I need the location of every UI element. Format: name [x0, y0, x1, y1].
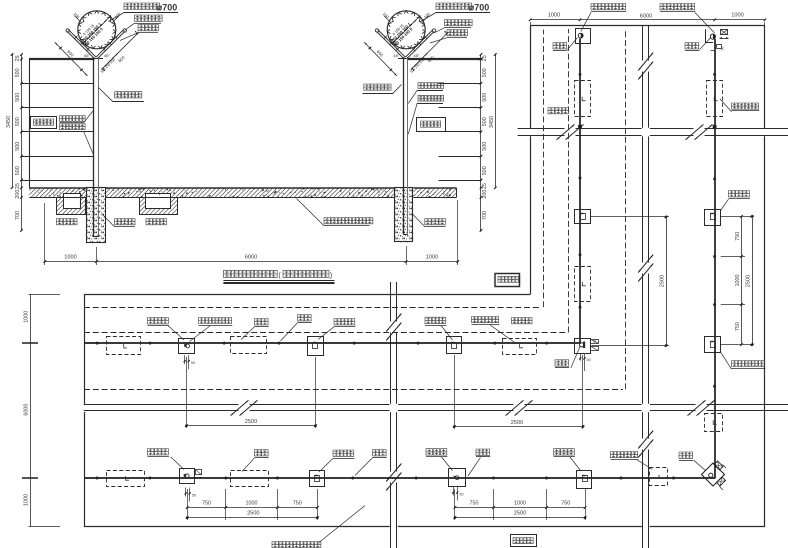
svg-text:3450: 3450	[489, 116, 495, 128]
svg-text:45°: 45°	[104, 53, 110, 58]
svg-text:50: 50	[586, 358, 590, 362]
svg-text:500: 500	[15, 93, 21, 102]
svg-text:25: 25	[15, 183, 21, 189]
svg-text:200: 200	[15, 190, 21, 199]
svg-text:25: 25	[482, 183, 488, 189]
svg-text:500: 500	[482, 68, 488, 77]
svg-text:700: 700	[482, 211, 488, 220]
svg-text:750: 750	[470, 501, 479, 507]
svg-text:500: 500	[482, 166, 488, 175]
svg-text:1000: 1000	[24, 494, 30, 506]
svg-text:): )	[330, 272, 332, 279]
svg-text:750: 750	[735, 322, 741, 331]
svg-text:1000: 1000	[426, 255, 438, 261]
svg-text:45°: 45°	[84, 53, 90, 58]
svg-text:45°: 45°	[413, 53, 419, 58]
svg-text:1000: 1000	[731, 13, 743, 19]
svg-text:500: 500	[15, 117, 21, 126]
svg-text:50: 50	[191, 361, 195, 365]
svg-text:25: 25	[482, 55, 488, 61]
svg-text:ø700: ø700	[157, 3, 178, 13]
svg-text:1000: 1000	[514, 501, 526, 507]
svg-text:6000: 6000	[24, 404, 30, 416]
svg-text:2500: 2500	[514, 511, 526, 517]
svg-text:500: 500	[482, 117, 488, 126]
svg-text:2500: 2500	[745, 275, 751, 287]
svg-text:2500: 2500	[659, 275, 665, 287]
svg-text:500: 500	[482, 142, 488, 151]
svg-text:50: 50	[593, 339, 597, 343]
svg-text:ø700: ø700	[469, 3, 490, 13]
svg-text:45°: 45°	[393, 53, 399, 58]
svg-text:750: 750	[293, 501, 302, 507]
svg-text:1000: 1000	[246, 501, 258, 507]
svg-text:750: 750	[735, 232, 741, 241]
svg-text:750: 750	[202, 501, 211, 507]
svg-text:1000: 1000	[548, 13, 560, 19]
svg-text:500: 500	[15, 142, 21, 151]
svg-text:1000: 1000	[735, 275, 741, 287]
svg-text:6000: 6000	[640, 14, 652, 20]
svg-text:1000: 1000	[24, 311, 30, 323]
svg-text:500: 500	[15, 166, 21, 175]
svg-text:200: 200	[482, 190, 488, 199]
svg-text:1000: 1000	[64, 255, 76, 261]
svg-text:50: 50	[721, 47, 725, 51]
svg-text:6000: 6000	[245, 255, 257, 261]
svg-text:700: 700	[15, 211, 21, 220]
svg-text:50: 50	[459, 493, 463, 497]
svg-text:500: 500	[482, 93, 488, 102]
svg-text:25: 25	[15, 55, 21, 61]
svg-text:2500: 2500	[245, 419, 257, 425]
svg-text:3450: 3450	[6, 116, 12, 128]
svg-text:2500: 2500	[511, 420, 523, 426]
svg-text:500: 500	[15, 68, 21, 77]
svg-text:50: 50	[192, 494, 196, 498]
svg-text:2500: 2500	[247, 511, 259, 517]
svg-text:750: 750	[561, 501, 570, 507]
